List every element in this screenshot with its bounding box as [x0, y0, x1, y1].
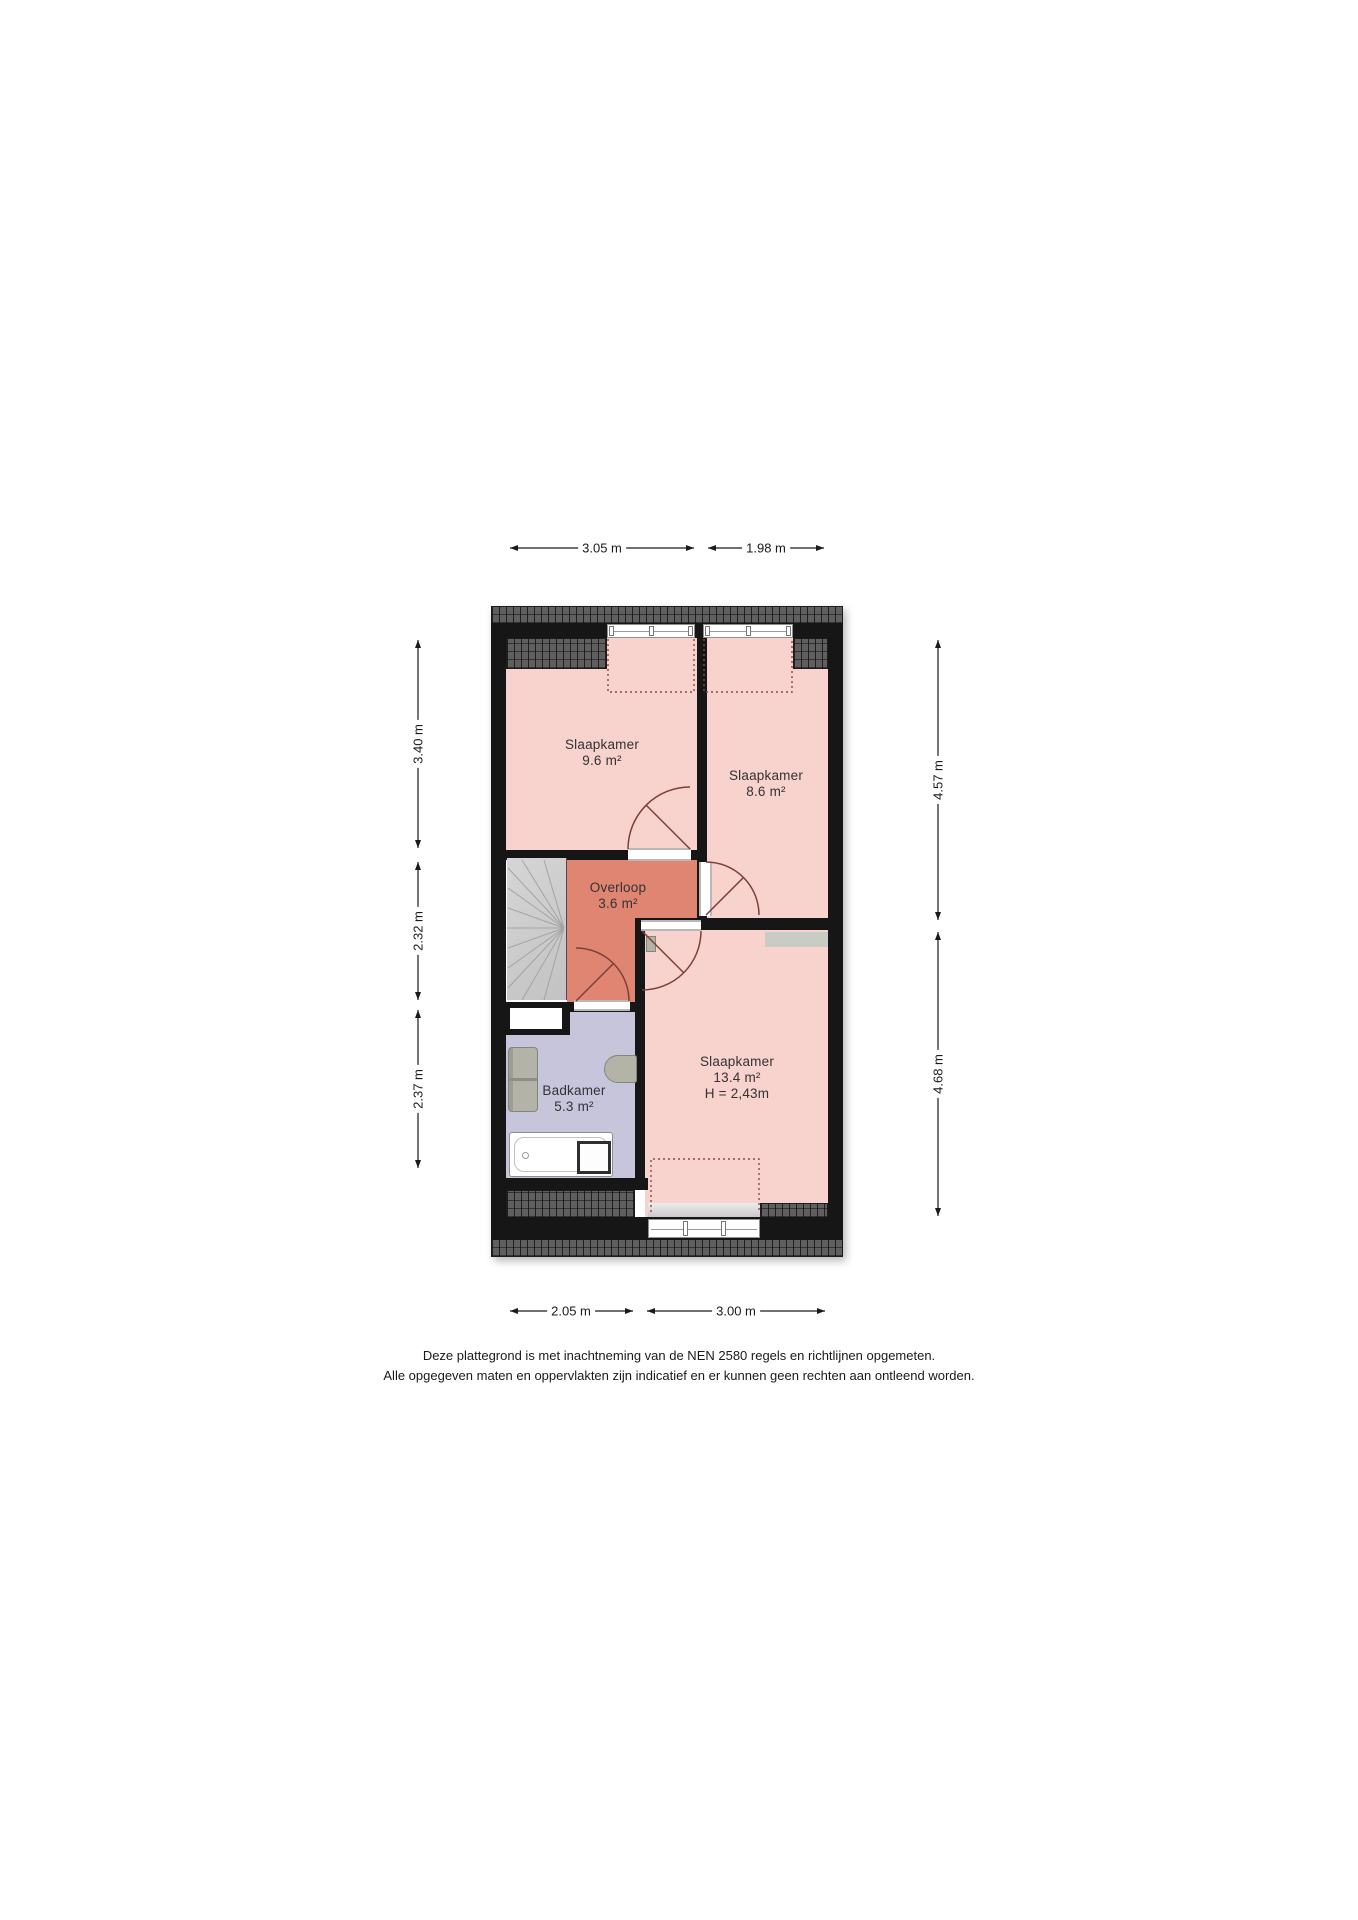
room-name: Slaapkamer	[700, 1054, 774, 1070]
door-arc-slaapkamer-9-6	[628, 787, 690, 849]
label-slaapkamer-8-6: Slaapkamer 8.6 m²	[729, 768, 803, 800]
label-badkamer: Badkamer 5.3 m²	[542, 1083, 605, 1115]
label-overloop: Overloop 3.6 m²	[590, 880, 646, 912]
dim-left-1: 3.40 m	[411, 720, 426, 768]
dimension-lines	[418, 548, 938, 1311]
room-area: 13.4 m²	[700, 1070, 774, 1086]
dim-right-2: 4.68 m	[931, 1050, 946, 1098]
dim-bottom-1: 2.05 m	[547, 1304, 595, 1319]
door-arc-slaapkamer-13-4	[642, 931, 701, 990]
floorplan-page: Slaapkamer 9.6 m² Slaapkamer 8.6 m² Over…	[0, 0, 1358, 1920]
plan-lines-overlay	[0, 0, 1358, 1920]
dim-left-2: 2.32 m	[411, 907, 426, 955]
room-area: 9.6 m²	[565, 753, 639, 769]
label-slaapkamer-9-6: Slaapkamer 9.6 m²	[565, 737, 639, 769]
door-arc-badkamer	[576, 948, 629, 1001]
dim-top-1: 3.05 m	[578, 541, 626, 556]
door-arc-slaapkamer-8-6	[706, 862, 759, 915]
dim-left-3: 2.37 m	[411, 1065, 426, 1113]
room-area: 3.6 m²	[590, 896, 646, 912]
roof-dotted-outlines	[608, 639, 792, 1212]
room-height: H = 2,43m	[700, 1086, 774, 1102]
room-name: Slaapkamer	[565, 737, 639, 753]
stairs-treads	[507, 860, 564, 1000]
room-name: Overloop	[590, 880, 646, 896]
dim-bottom-2: 3.00 m	[712, 1304, 760, 1319]
label-slaapkamer-13-4: Slaapkamer 13.4 m² H = 2,43m	[700, 1054, 774, 1102]
dim-top-2: 1.98 m	[742, 541, 790, 556]
room-name: Slaapkamer	[729, 768, 803, 784]
room-area: 8.6 m²	[729, 784, 803, 800]
dim-right-1: 4.57 m	[931, 756, 946, 804]
room-area: 5.3 m²	[542, 1099, 605, 1115]
room-name: Badkamer	[542, 1083, 605, 1099]
